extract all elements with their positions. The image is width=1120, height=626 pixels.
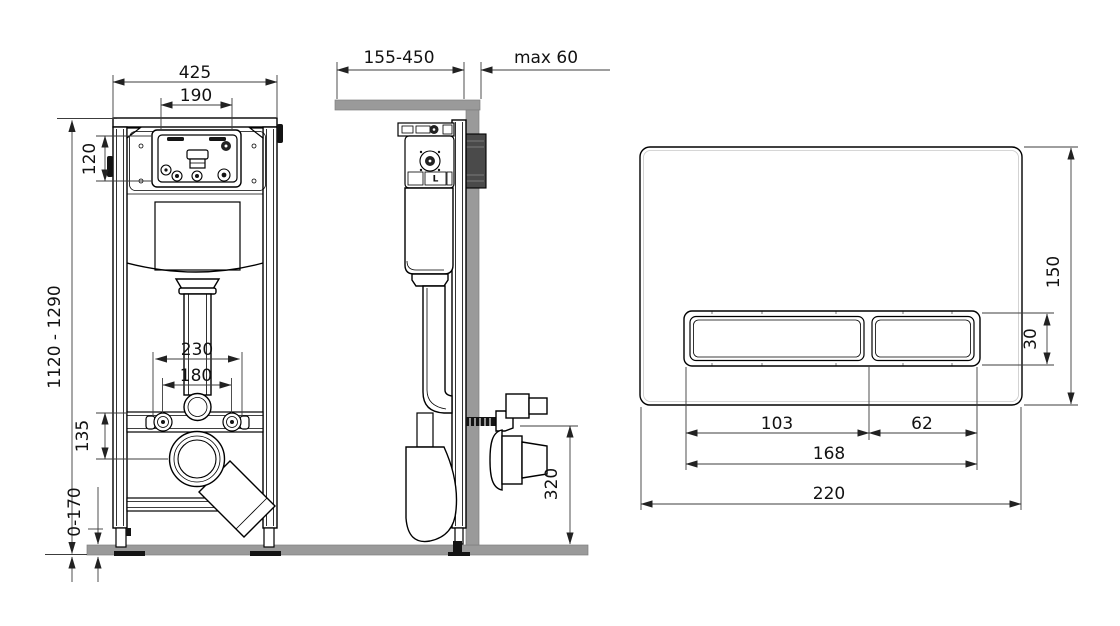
fill-valve-body	[190, 159, 205, 168]
flush-connector	[506, 394, 529, 418]
corner-bracket-right	[250, 128, 263, 138]
rail-clip-left	[107, 156, 113, 177]
wall-mount-plate	[464, 134, 486, 188]
flush-button-large	[690, 317, 864, 361]
flush-plate-view: 150 30 103 62 168 220	[640, 147, 1078, 510]
fixing-row	[127, 394, 263, 433]
front-view: 425 190 120 1120 - 1290 230 180 135 0-1	[45, 63, 283, 582]
dim-wall-max: max 60	[514, 48, 578, 68]
dim-button-small-width: 62	[911, 414, 933, 434]
dim-bolt-spacing: 180	[180, 366, 212, 386]
dim-depth-range: 155-450	[363, 48, 434, 68]
drain-connector-body	[502, 436, 522, 484]
dim-opening-height: 120	[80, 143, 100, 175]
cistern-side: L	[398, 123, 454, 413]
drain-connector-bell	[490, 430, 502, 490]
technical-drawing: 425 190 120 1120 - 1290 230 180 135 0-1	[0, 0, 1120, 626]
dim-opening-width: 190	[180, 86, 212, 106]
frame-top-bar	[113, 118, 277, 127]
dim-drain-offset: 135	[73, 420, 93, 452]
dim-feet-adjust: 0-170	[65, 487, 85, 536]
drain-assembly	[127, 432, 275, 538]
cistern-face	[155, 202, 240, 270]
fixing-rod	[466, 417, 497, 426]
corner-bracket-left	[127, 128, 140, 138]
dim-frame-width: 425	[179, 63, 211, 83]
drawing-canvas: 425 190 120 1120 - 1290 230 180 135 0-1	[0, 0, 1120, 626]
side-view: L 155-450	[335, 48, 610, 556]
foot-plate-left	[114, 551, 145, 556]
foot-right	[264, 528, 274, 547]
cistern-tank-side	[405, 188, 453, 274]
foot-left	[116, 528, 126, 547]
dim-button-height: 30	[1021, 328, 1041, 350]
dim-button-large-width: 103	[761, 414, 793, 434]
drain-elbow-side	[406, 447, 457, 542]
cistern-l-mark: L	[433, 175, 439, 185]
dim-outlet-height: 320	[542, 468, 562, 500]
flush-button-small	[872, 317, 974, 361]
dim-buttons-total-width: 168	[813, 444, 845, 464]
dim-install-height: 1120 - 1290	[45, 285, 65, 388]
fill-valve-top	[187, 150, 208, 159]
foot-plate-right	[250, 551, 281, 556]
dim-plate-height: 150	[1044, 256, 1064, 288]
dim-plate-width: 220	[813, 484, 845, 504]
frame-rail-left	[113, 127, 127, 528]
floor-band	[87, 545, 588, 555]
dim-outer-spacing: 230	[181, 340, 213, 360]
rail-clip-right	[277, 124, 283, 143]
top-support-band	[335, 100, 480, 110]
